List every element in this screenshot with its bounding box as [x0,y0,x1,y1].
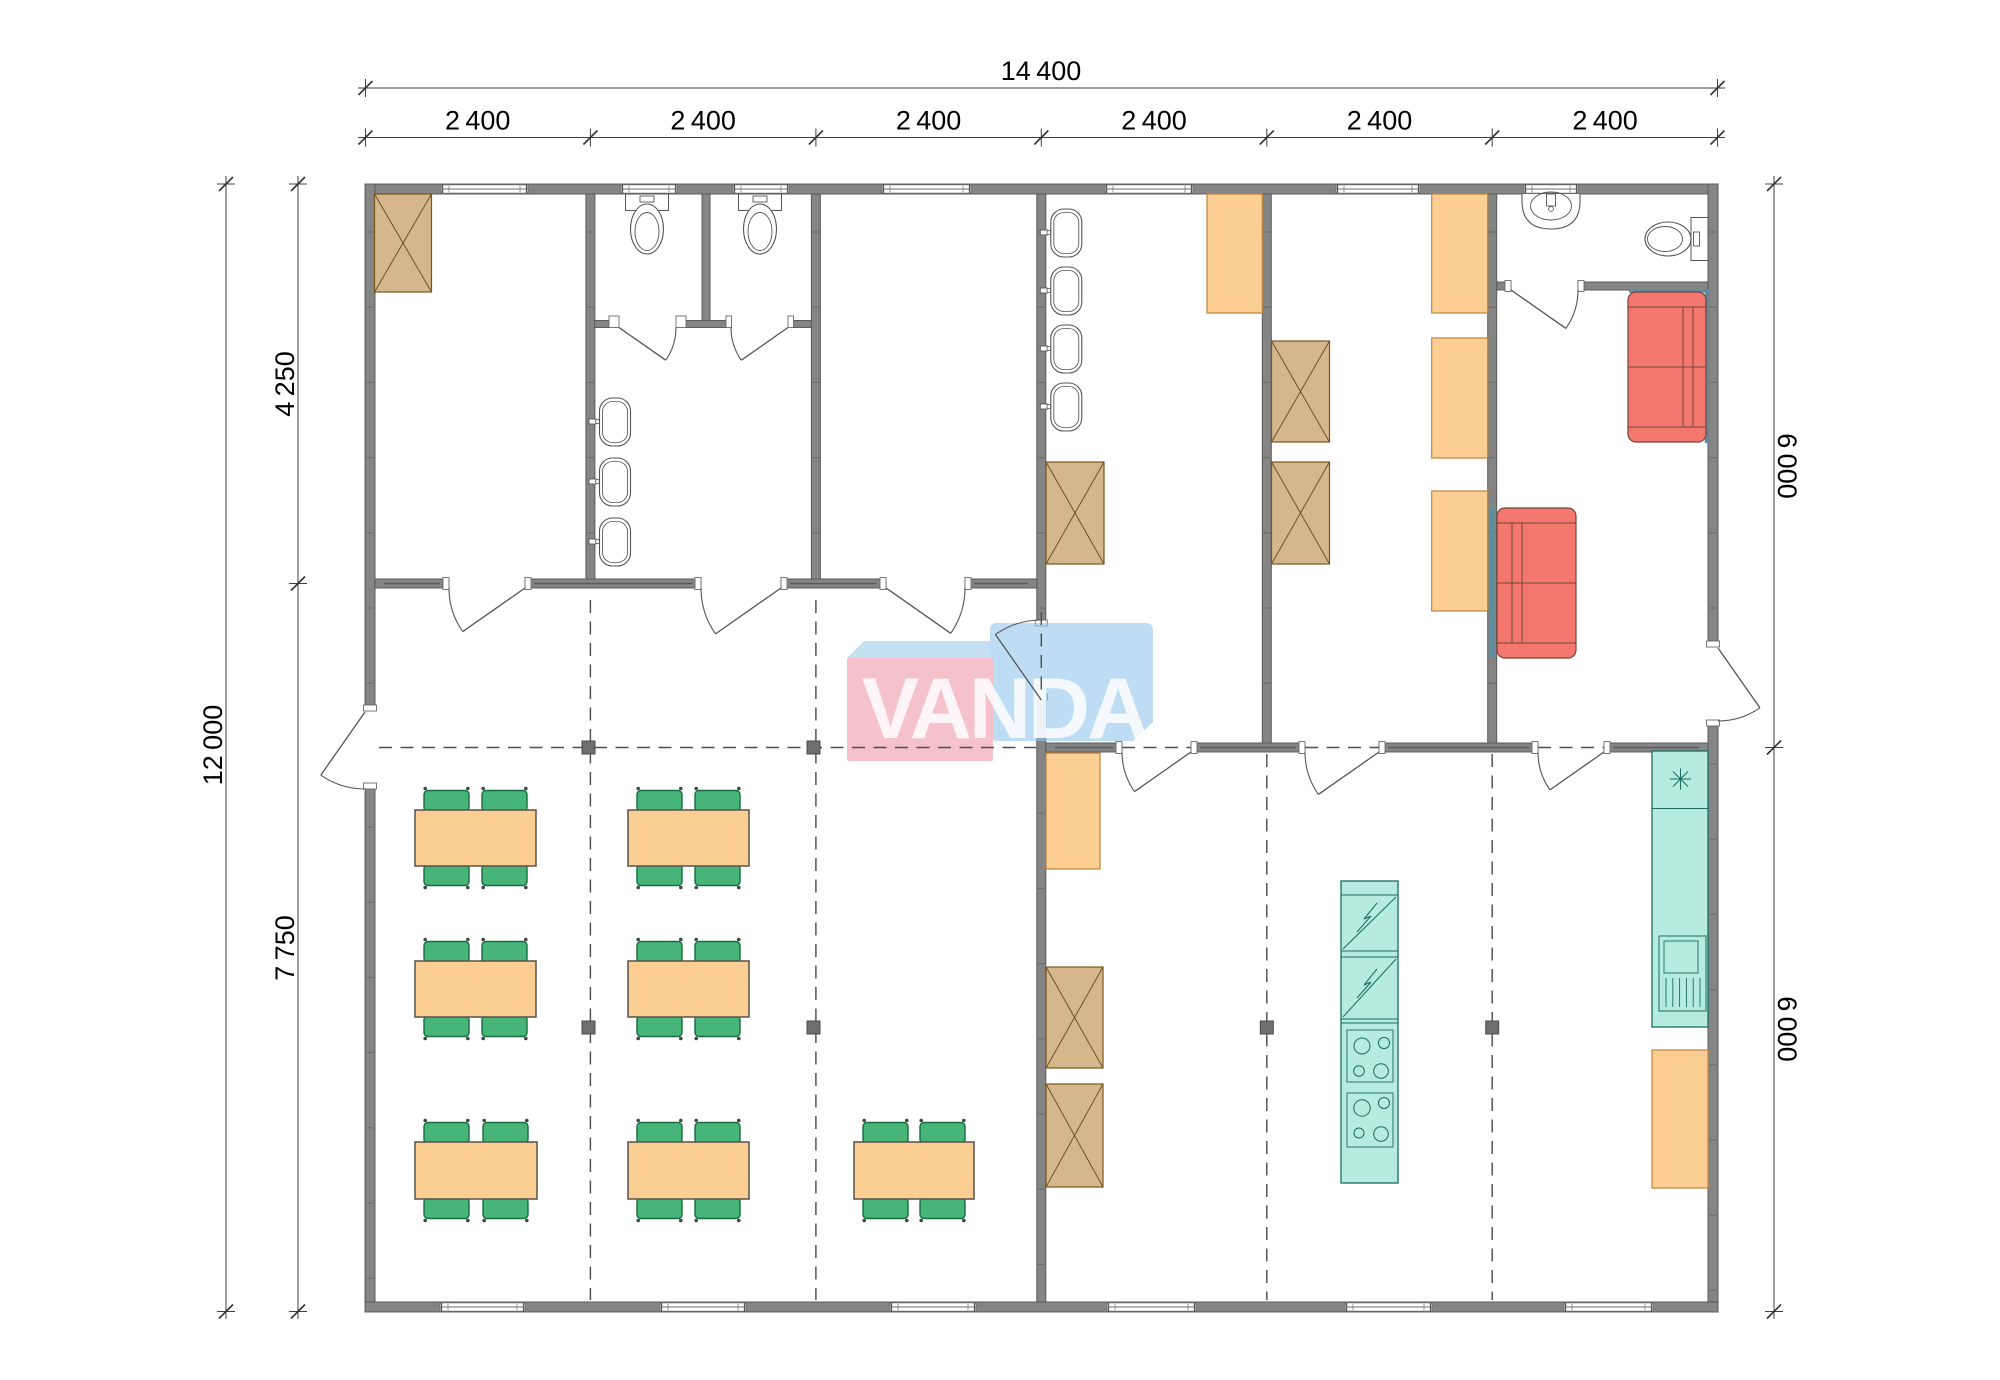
svg-text:12 000: 12 000 [198,705,228,786]
svg-text:2 400: 2 400 [1572,106,1637,136]
svg-text:VANDA: VANDA [862,661,1147,757]
svg-text:2 400: 2 400 [1121,106,1186,136]
svg-text:6 000: 6 000 [1772,996,1802,1061]
svg-text:6 000: 6 000 [1772,433,1802,498]
svg-text:2 400: 2 400 [896,106,961,136]
svg-text:2 400: 2 400 [445,106,510,136]
svg-text:2 400: 2 400 [670,106,735,136]
svg-text:4 250: 4 250 [270,351,300,416]
svg-text:2 400: 2 400 [1347,106,1412,136]
svg-text:14 400: 14 400 [1001,56,1082,86]
svg-text:7 750: 7 750 [270,915,300,980]
